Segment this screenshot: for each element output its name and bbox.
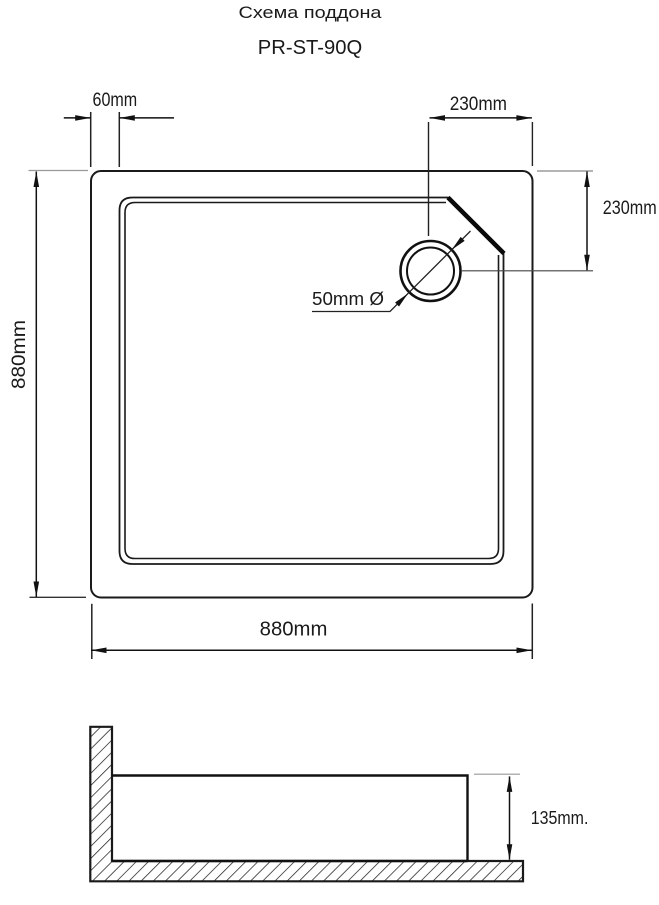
svg-text:135mm.: 135mm.	[531, 808, 589, 828]
svg-text:PR-ST-90Q: PR-ST-90Q	[258, 37, 362, 59]
svg-text:50mm Ø: 50mm Ø	[312, 288, 384, 309]
svg-text:880mm: 880mm	[260, 618, 328, 640]
svg-text:Схема поддона: Схема поддона	[239, 3, 383, 22]
svg-text:230mm: 230mm	[450, 94, 507, 115]
svg-text:60mm: 60mm	[93, 90, 138, 111]
svg-text:230mm: 230mm	[603, 198, 657, 219]
svg-text:880mm: 880mm	[8, 320, 30, 389]
